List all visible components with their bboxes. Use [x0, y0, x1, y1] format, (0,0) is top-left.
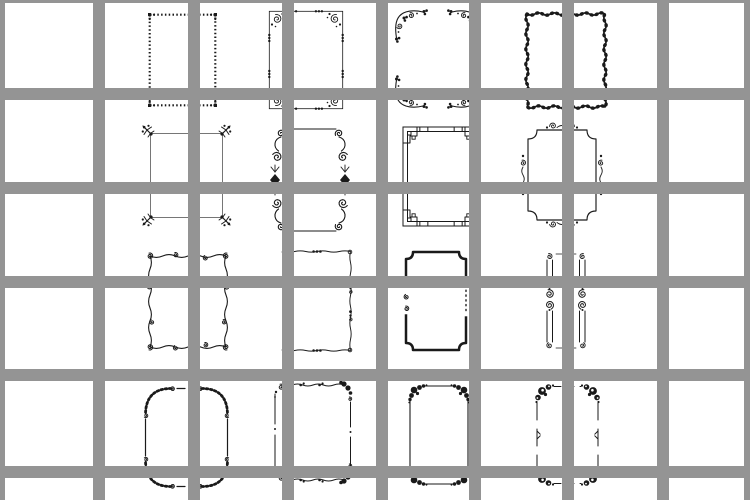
grid-bar-vertical: [93, 0, 105, 500]
grid-bar-horizontal: [0, 276, 750, 288]
frame-beaded-dotted: [148, 13, 217, 107]
frame-ruffled-corner: [143, 386, 230, 489]
frame-corner-scroll-bead: [268, 10, 344, 110]
grid-bar-vertical: [657, 0, 669, 500]
grid-bar-vertical: [376, 0, 388, 500]
grid-bar-horizontal: [0, 88, 750, 100]
grid-bar-horizontal: [0, 0, 750, 3]
frame-rosette-corner: [534, 383, 601, 487]
grid-bar-horizontal: [0, 369, 750, 381]
grid-bar-vertical: [744, 0, 750, 500]
frame-bold-notched: [403, 250, 469, 352]
frame-acanthus-corner: [407, 383, 471, 487]
frame-double-scroll-bars: [536, 250, 596, 352]
frame-curly-squiggle: [144, 250, 232, 353]
frame-notched-plaque: [518, 121, 606, 229]
frame-s-scroll-diamond: [268, 127, 352, 233]
grid-bar-horizontal: [0, 466, 750, 478]
frame-wavy-bead: [280, 248, 354, 354]
clipart-sheet: [0, 0, 750, 500]
frame-leafy-wave-border: [524, 11, 608, 110]
grid-bar-horizontal: [0, 182, 750, 194]
grid-overlay: [0, 0, 750, 500]
grid-bar-vertical: [0, 0, 5, 500]
frame-greek-key: [402, 126, 480, 227]
frame-floral-corner-vine: [393, 8, 482, 110]
frame-branch-corner: [141, 124, 232, 227]
frame-leafy-flourish: [272, 378, 354, 487]
